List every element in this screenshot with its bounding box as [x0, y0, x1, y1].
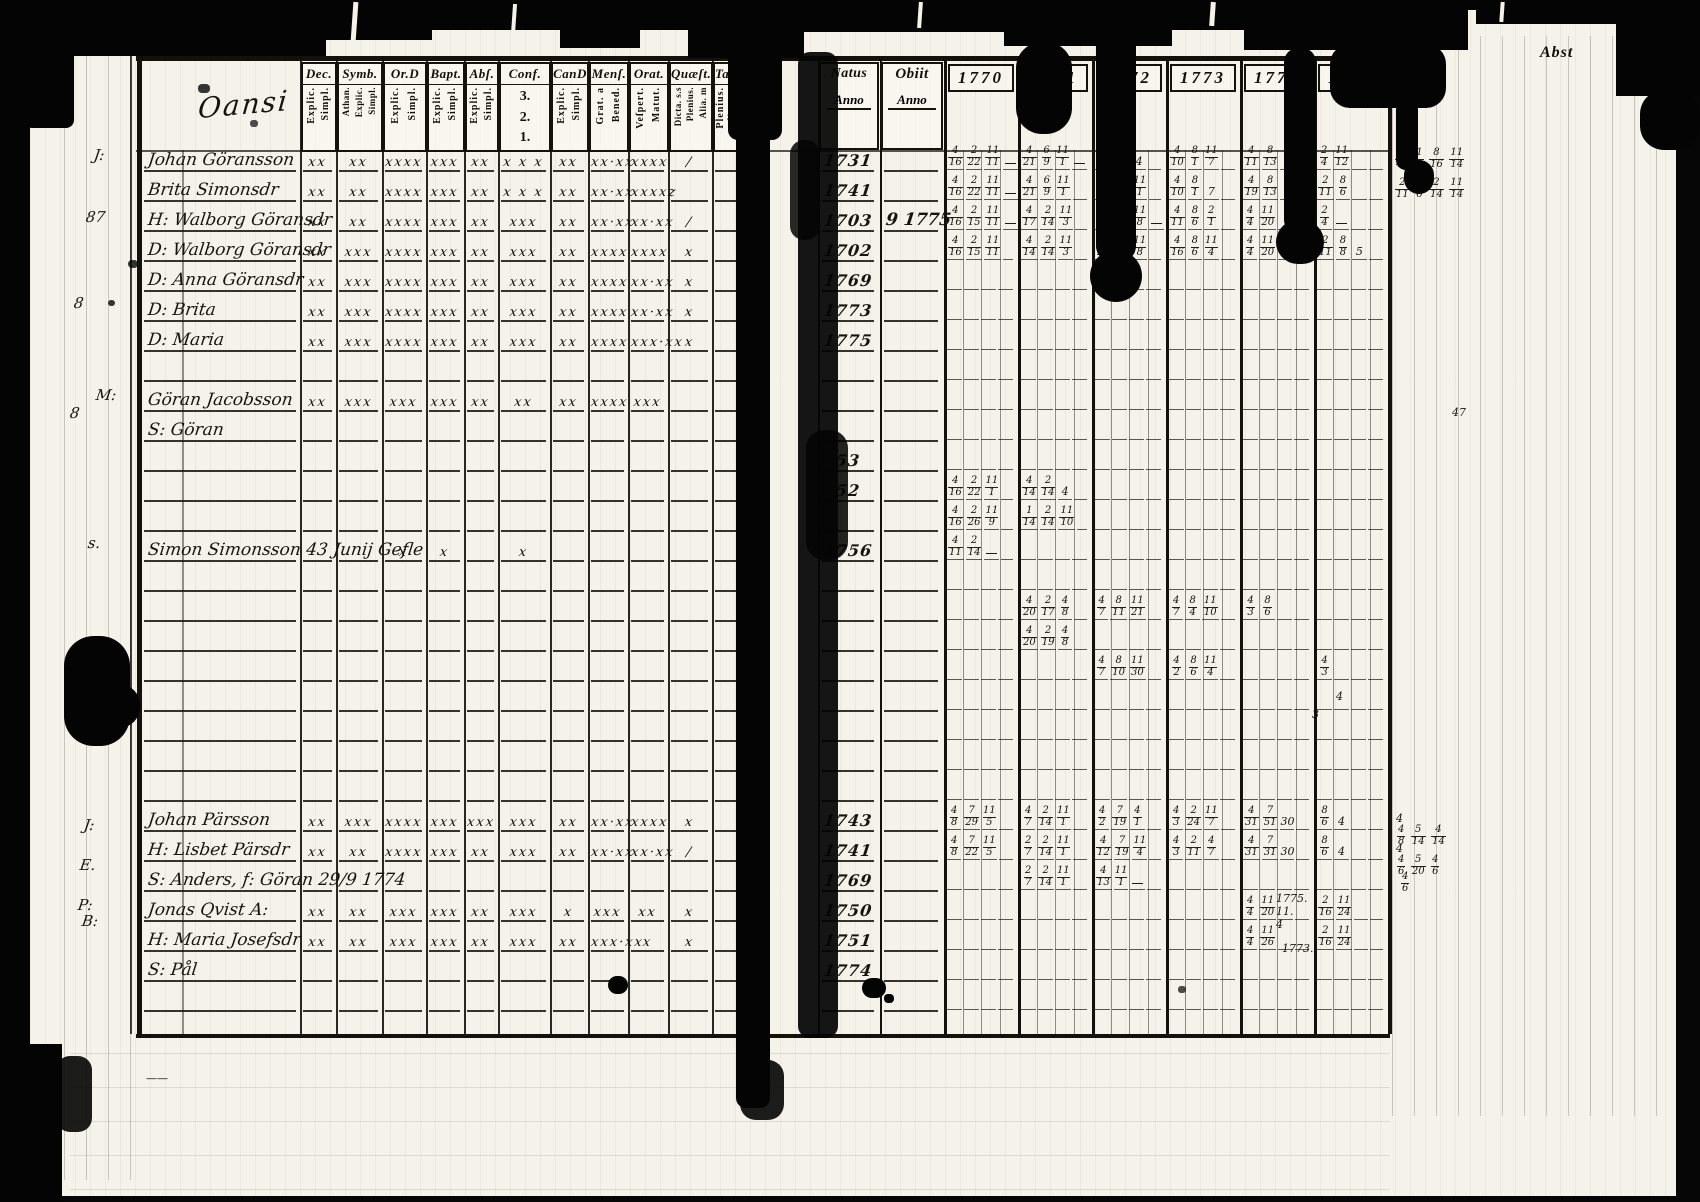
- stray-annotation: 1773.: [1282, 942, 1314, 955]
- header-col-abs: Abſ.Explic.Simpl.: [465, 62, 499, 152]
- examination-marks: xxxx: [384, 215, 423, 230]
- mark-cell: xxx: [385, 380, 422, 412]
- year-entry-cell: 4286114: [1168, 650, 1236, 680]
- date-fraction: 111: [1057, 806, 1070, 828]
- communion-date-slot: [1038, 350, 1053, 380]
- date-fraction: 411: [948, 536, 963, 558]
- examination-marks: xxxx: [590, 395, 625, 410]
- communion-date-slot: [947, 380, 962, 410]
- examination-marks: xxxx: [590, 305, 625, 320]
- communion-date-slot: [1055, 440, 1070, 470]
- communion-date-slot: [1186, 410, 1201, 440]
- mark-cell: [591, 590, 624, 622]
- communion-date-slot: [1294, 260, 1309, 290]
- communion-date-slot: [1294, 350, 1309, 380]
- communion-date-slot: [1352, 170, 1366, 200]
- communion-date-slot: [1243, 410, 1258, 440]
- mark-cell: [303, 770, 332, 802]
- communion-date-slot: 1111: [984, 200, 1001, 230]
- communion-date-slot: [981, 320, 996, 350]
- table-row: [0, 740, 1700, 770]
- communion-date-slot: 731: [1262, 830, 1279, 860]
- header-col-sub: Matut.: [652, 87, 663, 122]
- communion-date-slot: [981, 440, 996, 470]
- communion-date-slot: 214: [1040, 200, 1057, 230]
- examination-marks: xxx: [428, 275, 461, 290]
- header-col-sub: Simpl.: [572, 87, 583, 121]
- communion-date-slot: [981, 350, 996, 380]
- communion-date-slot: [1169, 680, 1184, 710]
- communion-date-slot: [964, 950, 979, 980]
- examination-marks: xxx: [428, 815, 461, 830]
- mark-cell: [385, 620, 422, 652]
- date-fraction: 813: [1263, 176, 1278, 198]
- mark-cell: [339, 710, 378, 742]
- obiit-cell: [884, 590, 938, 622]
- communion-date-slot: [1220, 890, 1235, 920]
- date-fraction: 114: [1205, 236, 1218, 258]
- communion-date-slot: [1334, 200, 1349, 230]
- mark-cell: [553, 680, 584, 712]
- year-entry-cell: [1094, 350, 1162, 380]
- communion-date-slot: [1368, 320, 1383, 350]
- examination-marks: xxx: [384, 905, 423, 920]
- mark-cell: [501, 590, 546, 622]
- communion-date-slot: [1169, 410, 1184, 440]
- communion-date-slot: [1146, 770, 1161, 800]
- date-fraction: 1120: [1260, 236, 1275, 258]
- communion-date-slot: [1220, 440, 1235, 470]
- ink-damage: [884, 994, 894, 1003]
- communion-date-slot: [1169, 950, 1184, 980]
- name-cell: Brita Simonsdr: [144, 170, 296, 202]
- communion-date-slot: [1186, 980, 1201, 1010]
- examination-marks: xxx: [428, 935, 461, 950]
- communion-date-slot: 86: [1260, 590, 1275, 620]
- mark-cell: xxx: [339, 290, 378, 322]
- mark-cell: [553, 350, 584, 382]
- communion-date-slot: [1055, 530, 1070, 560]
- communion-date-slot: [1112, 770, 1127, 800]
- mark-cell: [631, 350, 664, 382]
- communion-date-slot: [1055, 980, 1070, 1010]
- obiit-cell: [884, 860, 938, 892]
- communion-date-slot: [1073, 800, 1087, 830]
- year-entry-cell: [1316, 560, 1384, 590]
- communion-date-slot: [1368, 410, 1383, 440]
- mark-cell: [501, 680, 546, 712]
- mark-cell: xxxx: [591, 320, 624, 352]
- communion-date-slot: [1296, 800, 1309, 830]
- mark-cell: x: [671, 920, 708, 952]
- communion-date-slot: [1112, 350, 1127, 380]
- examination-marks: xx·xx: [630, 275, 665, 290]
- communion-date-slot: 719: [1114, 830, 1131, 860]
- communion-date-slot: [1354, 920, 1367, 950]
- communion-date-slot: [1277, 350, 1292, 380]
- communion-date-slot: [1351, 440, 1366, 470]
- dash-mark: [1074, 163, 1085, 164]
- communion-date-slot: [1334, 770, 1349, 800]
- communion-date-slot: [1055, 920, 1070, 950]
- mark-cell: xxx: [501, 200, 546, 232]
- communion-date-slot: 413: [1095, 860, 1112, 890]
- year-entry-cell: [1168, 890, 1236, 920]
- mark-cell: [429, 410, 460, 442]
- communion-date-slot: [1294, 680, 1309, 710]
- year-entry-cell: [946, 740, 1014, 770]
- year-entry-cell: [946, 440, 1014, 470]
- mark-cell: [467, 680, 494, 712]
- mark-cell: [631, 950, 664, 982]
- mark-cell: xx: [467, 290, 494, 322]
- communion-date-slot: 416: [947, 470, 964, 500]
- mark-cell: xxxx: [385, 800, 422, 832]
- examination-marks: xx: [552, 305, 585, 320]
- examination-marks: xxxx: [590, 275, 625, 290]
- obiit-cell: [884, 650, 938, 682]
- communion-date-slot: [1260, 260, 1275, 290]
- communion-date-slot: [1260, 980, 1275, 1010]
- year-entry-cell: [1094, 320, 1162, 350]
- communion-date-slot: [1021, 920, 1036, 950]
- mark-cell: xxx: [429, 170, 460, 202]
- year-entry-cell: [1020, 710, 1088, 740]
- communion-date-slot: [1055, 380, 1070, 410]
- header-col-sub: Simpl.: [448, 87, 459, 121]
- date-fraction: 115: [983, 836, 996, 858]
- communion-date-slot: [1038, 380, 1053, 410]
- examination-marks: xx·xx: [630, 305, 665, 320]
- communion-date-slot: 113: [1058, 230, 1073, 260]
- person-name: S: Pål: [147, 960, 198, 980]
- communion-date-slot: [1095, 890, 1110, 920]
- communion-date-slot: [1368, 440, 1383, 470]
- communion-date-slot: [1095, 620, 1110, 650]
- mark-cell: [715, 140, 736, 172]
- communion-date-slot: [1129, 440, 1144, 470]
- mark-cell: [715, 230, 736, 262]
- communion-date-slot: [1095, 440, 1110, 470]
- date-fraction: 731: [1263, 836, 1278, 858]
- year-entry-cell: [1242, 980, 1310, 1010]
- communion-date-slot: 86: [1188, 230, 1202, 260]
- communion-date-slot: 214: [1037, 860, 1054, 890]
- communion-date-slot: [1277, 650, 1292, 680]
- communion-date-slot: 216: [1317, 890, 1334, 920]
- communion-date-slot: [1351, 380, 1366, 410]
- mark-cell: xx: [467, 920, 494, 952]
- obiit-cell: [884, 140, 938, 172]
- communion-date-slot: [1243, 470, 1258, 500]
- mark-cell: [429, 740, 460, 772]
- mark-cell: [303, 740, 332, 772]
- communion-date-slot: [1277, 260, 1292, 290]
- mark-cell: xxxx: [385, 830, 422, 862]
- communion-date-slot: [1317, 860, 1332, 890]
- communion-date-slot: [1095, 500, 1110, 530]
- communion-date-slot: [1075, 230, 1087, 260]
- mark-cell: [591, 770, 624, 802]
- communion-date-slot: [1260, 650, 1275, 680]
- mark-cell: [385, 410, 422, 442]
- communion-date-slot: [1277, 500, 1292, 530]
- communion-date-slot: [1038, 890, 1053, 920]
- year-entry-cell: 4321147: [1168, 830, 1236, 860]
- communion-date-slot: [1221, 200, 1235, 230]
- communion-date-slot: [1294, 770, 1309, 800]
- communion-date-slot: [981, 290, 996, 320]
- communion-date-slot: 217: [1040, 590, 1057, 620]
- communion-date-slot: [1351, 530, 1366, 560]
- communion-date-slot: [1243, 320, 1258, 350]
- year-entry-cell: [1020, 290, 1088, 320]
- communion-date-slot: [1095, 470, 1110, 500]
- communion-date-slot: [1186, 470, 1201, 500]
- name-cell: [144, 710, 296, 742]
- year-entry-cell: 43173130: [1242, 830, 1310, 860]
- communion-date-slot: [1112, 530, 1127, 560]
- mark-cell: xx: [467, 140, 494, 172]
- communion-date-slot: [1001, 500, 1013, 530]
- mark-cell: [501, 500, 546, 532]
- date-fraction: 44: [1246, 206, 1254, 228]
- communion-date-slot: [1351, 560, 1366, 590]
- margin-note: 87: [85, 208, 107, 226]
- examination-marks: x x x: [500, 155, 547, 170]
- mark-cell: [715, 530, 736, 562]
- communion-date-slot: [981, 650, 996, 680]
- mark-cell: xx: [303, 830, 332, 862]
- communion-date-slot: 84: [1185, 590, 1199, 620]
- communion-date-slot: [1277, 680, 1292, 710]
- year-entry-cell: [1094, 920, 1162, 950]
- margin-note: s.: [87, 534, 102, 552]
- communion-date-slot: 115: [982, 830, 997, 860]
- communion-date-slot: [947, 620, 962, 650]
- communion-date-slot: [1169, 920, 1184, 950]
- year-entry-cell: [1316, 410, 1384, 440]
- communion-date-slot: [1072, 260, 1087, 290]
- ink-damage: [1276, 220, 1324, 264]
- communion-date-slot: [1146, 530, 1161, 560]
- mark-cell: xx: [467, 890, 494, 922]
- mark-cell: xxx: [501, 800, 546, 832]
- name-cell: S: Anders, f: Göran 29/9 1774: [144, 860, 296, 892]
- mark-cell: xxx: [501, 890, 546, 922]
- communion-date-slot: [947, 680, 962, 710]
- mark-cell: [339, 740, 378, 772]
- mark-cell: [339, 560, 378, 592]
- year-entry-cell: [1020, 980, 1088, 1010]
- communion-date-slot: [1243, 650, 1258, 680]
- communion-date-slot: [1169, 620, 1184, 650]
- obiit-header: ObiitAnno: [881, 62, 943, 150]
- mark-cell: [467, 410, 494, 442]
- year-entry-cell: [946, 650, 1014, 680]
- mark-cell: xx: [553, 290, 584, 322]
- communion-date-slot: [1074, 590, 1087, 620]
- communion-date-slot: [947, 560, 962, 590]
- examination-marks: xxxx: [384, 185, 423, 200]
- mark-cell: [429, 770, 460, 802]
- examination-marks: x x x: [500, 185, 547, 200]
- communion-date-slot: [1243, 380, 1258, 410]
- date-fraction: 1130: [1130, 656, 1145, 678]
- communion-date-slot: 111: [1056, 860, 1071, 890]
- name-cell: Göran Jacobsson: [144, 380, 296, 412]
- ink-damage: [806, 430, 848, 560]
- date-fraction: 1110: [1059, 506, 1074, 528]
- year-entry-cell: [1020, 560, 1088, 590]
- mark-cell: xx·xx: [591, 800, 624, 832]
- name-cell: [144, 590, 296, 622]
- year-entry-cell: [1094, 740, 1162, 770]
- header-col-symb: Symb.Athan.Explic.Simpl.: [337, 62, 383, 152]
- examination-marks: xx: [552, 185, 585, 200]
- name-cell: [144, 650, 296, 682]
- communion-date-slot: [1021, 530, 1036, 560]
- annotation: 4: [1336, 690, 1343, 703]
- year-entry-cell: 43224117: [1168, 800, 1236, 830]
- corner-label: Abst: [1540, 44, 1573, 62]
- communion-date-slot: 751: [1262, 800, 1279, 830]
- mark-cell: [553, 530, 584, 562]
- examination-marks: xxx·xx: [630, 335, 665, 350]
- communion-date-slot: [998, 350, 1013, 380]
- mark-cell: x x x: [501, 140, 546, 172]
- date-fraction: 113: [1059, 236, 1072, 258]
- examination-marks: xxx: [428, 335, 461, 350]
- communion-date-slot: 114: [1203, 650, 1218, 680]
- examination-marks: xxxx: [630, 155, 665, 170]
- date-fraction: 416: [948, 506, 963, 528]
- date-fraction: 1111: [985, 236, 1000, 258]
- ink-damage: [1404, 160, 1434, 194]
- communion-date-slot: 420: [1021, 620, 1038, 650]
- name-cell: [144, 500, 296, 532]
- communion-date-slot: 27: [1021, 860, 1035, 890]
- communion-date-slot: [1277, 860, 1292, 890]
- communion-date-slot: [998, 320, 1013, 350]
- mark-cell: xxx: [631, 380, 664, 412]
- mark-cell: xx: [303, 320, 332, 352]
- communion-date-slot: [1294, 530, 1309, 560]
- date-fraction: 421: [1022, 176, 1037, 198]
- communion-date-slot: [1021, 410, 1036, 440]
- communion-date-slot: 431: [1243, 800, 1260, 830]
- mark-cell: xx: [303, 800, 332, 832]
- date-fraction: 215: [967, 236, 982, 258]
- communion-date-slot: [1277, 380, 1292, 410]
- ink-damage: [736, 4, 770, 1108]
- communion-date-slot: [1203, 440, 1218, 470]
- annotation: 30: [1280, 845, 1294, 858]
- communion-date-slot: [1055, 740, 1070, 770]
- year-entry-cell: 47214111: [1020, 800, 1088, 830]
- date-fraction: 416: [1170, 236, 1185, 258]
- ink-damage: [560, 0, 640, 48]
- communion-date-slot: 1110: [1202, 590, 1219, 620]
- communion-date-slot: 810: [1110, 650, 1127, 680]
- communion-date-slot: [964, 980, 979, 1010]
- communion-date-slot: 410: [1169, 140, 1186, 170]
- mark-cell: xxx: [385, 920, 422, 952]
- mark-cell: xxx: [429, 200, 460, 232]
- communion-date-slot: [1368, 200, 1383, 230]
- examination-marks: xxxxz: [630, 185, 665, 200]
- communion-date-slot: [1243, 860, 1258, 890]
- date-fraction: 86: [1263, 596, 1271, 618]
- examination-marks: xx: [466, 185, 495, 200]
- date-fraction: 214: [1041, 236, 1056, 258]
- mark-cell: xxxx: [591, 290, 624, 322]
- year-entry-cell: [1242, 560, 1310, 590]
- mark-cell: [303, 710, 332, 742]
- mark-cell: [553, 710, 584, 742]
- year-entry-cell: [1094, 440, 1162, 470]
- communion-date-slot: [1351, 710, 1366, 740]
- communion-date-slot: [1203, 560, 1218, 590]
- year-entry-cell: [1316, 440, 1384, 470]
- mark-cell: xxx·xx: [591, 920, 624, 952]
- communion-date-slot: [1072, 410, 1087, 440]
- person-name: Johan Göransson: [147, 150, 296, 170]
- obiit-cell: [884, 800, 938, 832]
- examination-marks: xx: [302, 905, 333, 920]
- mark-cell: [715, 380, 736, 412]
- communion-date-slot: [1072, 890, 1087, 920]
- mark-cell: [501, 560, 546, 592]
- mark-cell: [385, 950, 422, 982]
- obiit-cell: [884, 680, 938, 712]
- communion-date-slot: [1129, 680, 1144, 710]
- date-fraction: 47: [1207, 836, 1215, 858]
- communion-date-slot: [1220, 350, 1235, 380]
- examination-marks: xx: [302, 395, 333, 410]
- communion-date-slot: 1111: [984, 170, 1001, 200]
- communion-date-slot: [947, 770, 962, 800]
- mark-cell: [303, 470, 332, 502]
- communion-date-slot: 431: [1243, 830, 1260, 860]
- communion-date-slot: 117: [1204, 800, 1219, 830]
- mark-cell: [303, 410, 332, 442]
- mark-cell: xxxxz: [631, 170, 664, 202]
- mark-cell: xxx: [385, 890, 422, 922]
- mark-cell: [339, 680, 378, 712]
- communion-date-slot: [1351, 620, 1366, 650]
- examination-marks: xx: [552, 155, 585, 170]
- communion-date-slot: [1038, 260, 1053, 290]
- person-name: D: Anna Göransdr: [147, 270, 305, 290]
- communion-date-slot: [1129, 890, 1144, 920]
- mark-cell: xx: [553, 830, 584, 862]
- examination-marks: x: [670, 245, 709, 260]
- name-cell: Simon Simonsson 43 Junij Gefle: [144, 530, 296, 562]
- mark-cell: xxxx: [385, 260, 422, 292]
- mark-cell: [385, 500, 422, 532]
- examination-marks: xxx: [338, 395, 379, 410]
- name-cell: S: Göran: [144, 410, 296, 442]
- year-entry-cell: [1316, 740, 1384, 770]
- year-entry-cell: 42021948: [1020, 620, 1088, 650]
- communion-date-slot: [1148, 650, 1161, 680]
- examination-marks: xxx: [428, 215, 461, 230]
- year-entry-cell: [1094, 710, 1162, 740]
- communion-date-slot: 224: [1185, 800, 1202, 830]
- communion-date-slot: [1294, 980, 1309, 1010]
- communion-date-slot: [947, 890, 962, 920]
